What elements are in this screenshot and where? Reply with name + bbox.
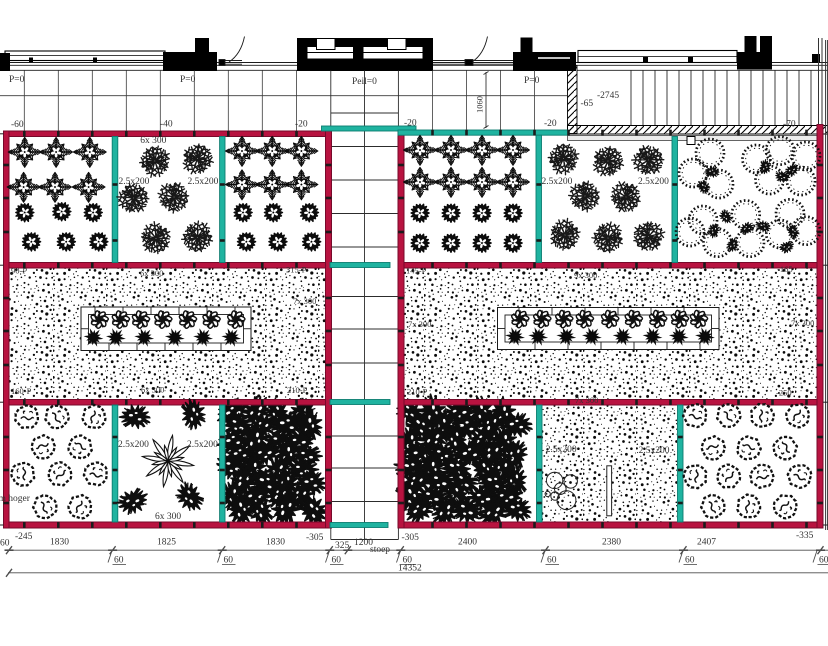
svg-text:m hoger: m hoger bbox=[0, 494, 31, 504]
svg-text:60: 60 bbox=[685, 556, 695, 566]
svg-text:7x 300: 7x 300 bbox=[408, 319, 431, 329]
svg-text:7x 300: 7x 300 bbox=[791, 318, 814, 328]
svg-text:2380: 2380 bbox=[602, 538, 621, 548]
svg-text:2.5x200: 2.5x200 bbox=[638, 177, 669, 187]
svg-text:60: 60 bbox=[0, 539, 10, 549]
svg-text:-60: -60 bbox=[11, 120, 24, 130]
svg-text:-245: -245 bbox=[15, 532, 33, 542]
svg-text:6x 300: 6x 300 bbox=[141, 385, 164, 395]
svg-text:60: 60 bbox=[332, 556, 342, 566]
svg-text:7x 300: 7x 300 bbox=[575, 395, 598, 405]
svg-text:-2745: -2745 bbox=[597, 91, 619, 101]
svg-text:210-P: 210-P bbox=[407, 387, 428, 397]
svg-text:7x 300: 7x 300 bbox=[293, 296, 316, 306]
svg-text:-165: -165 bbox=[777, 264, 793, 274]
svg-text:P=0: P=0 bbox=[524, 76, 540, 86]
svg-text:1060: 1060 bbox=[475, 96, 485, 113]
svg-text:60: 60 bbox=[224, 556, 234, 566]
svg-text:14352: 14352 bbox=[398, 564, 422, 574]
svg-text:P=0: P=0 bbox=[180, 75, 196, 85]
svg-text:60: 60 bbox=[547, 556, 557, 566]
svg-text:-20: -20 bbox=[544, 119, 557, 129]
svg-text:1830: 1830 bbox=[50, 538, 69, 548]
svg-text:2.5x200: 2.5x200 bbox=[118, 440, 149, 450]
svg-text:-70: -70 bbox=[783, 120, 796, 130]
svg-text:6x 300: 6x 300 bbox=[140, 136, 166, 146]
svg-text:2400: 2400 bbox=[458, 538, 477, 548]
svg-text:-250: -250 bbox=[776, 388, 792, 398]
svg-text:stoep: stoep bbox=[370, 545, 390, 555]
svg-text:-305: -305 bbox=[306, 533, 324, 543]
svg-text:1825: 1825 bbox=[157, 538, 176, 548]
svg-text:60: 60 bbox=[114, 556, 124, 566]
svg-text:-335: -335 bbox=[796, 531, 814, 541]
svg-text:P=0: P=0 bbox=[9, 75, 25, 85]
svg-text:60: 60 bbox=[819, 556, 828, 566]
svg-text:-305: -305 bbox=[402, 533, 420, 543]
svg-text:160-P: 160-P bbox=[11, 386, 32, 396]
svg-text:6x 300: 6x 300 bbox=[155, 512, 181, 522]
svg-text:90-P: 90-P bbox=[11, 266, 27, 276]
svg-text:2407: 2407 bbox=[697, 538, 716, 548]
svg-text:2.5x200: 2.5x200 bbox=[546, 445, 577, 455]
svg-text:-65: -65 bbox=[581, 99, 594, 109]
svg-text:145-P: 145-P bbox=[406, 266, 427, 276]
svg-text:2.5x200: 2.5x200 bbox=[542, 177, 573, 187]
svg-text:2.5x200: 2.5x200 bbox=[187, 440, 218, 450]
svg-text:-20: -20 bbox=[295, 120, 308, 130]
svg-text:-40: -40 bbox=[160, 120, 173, 130]
svg-text:1830: 1830 bbox=[266, 538, 285, 548]
svg-text:2.5x200: 2.5x200 bbox=[639, 446, 670, 456]
svg-text:2.5x200: 2.5x200 bbox=[188, 177, 219, 187]
svg-text:2.5x200: 2.5x200 bbox=[119, 177, 150, 187]
svg-text:9x 300: 9x 300 bbox=[574, 270, 597, 280]
svg-text:210-P: 210-P bbox=[287, 385, 308, 395]
svg-text:315-P: 315-P bbox=[286, 265, 307, 275]
svg-text:6x 300: 6x 300 bbox=[140, 268, 163, 278]
svg-text:325: 325 bbox=[335, 541, 350, 551]
